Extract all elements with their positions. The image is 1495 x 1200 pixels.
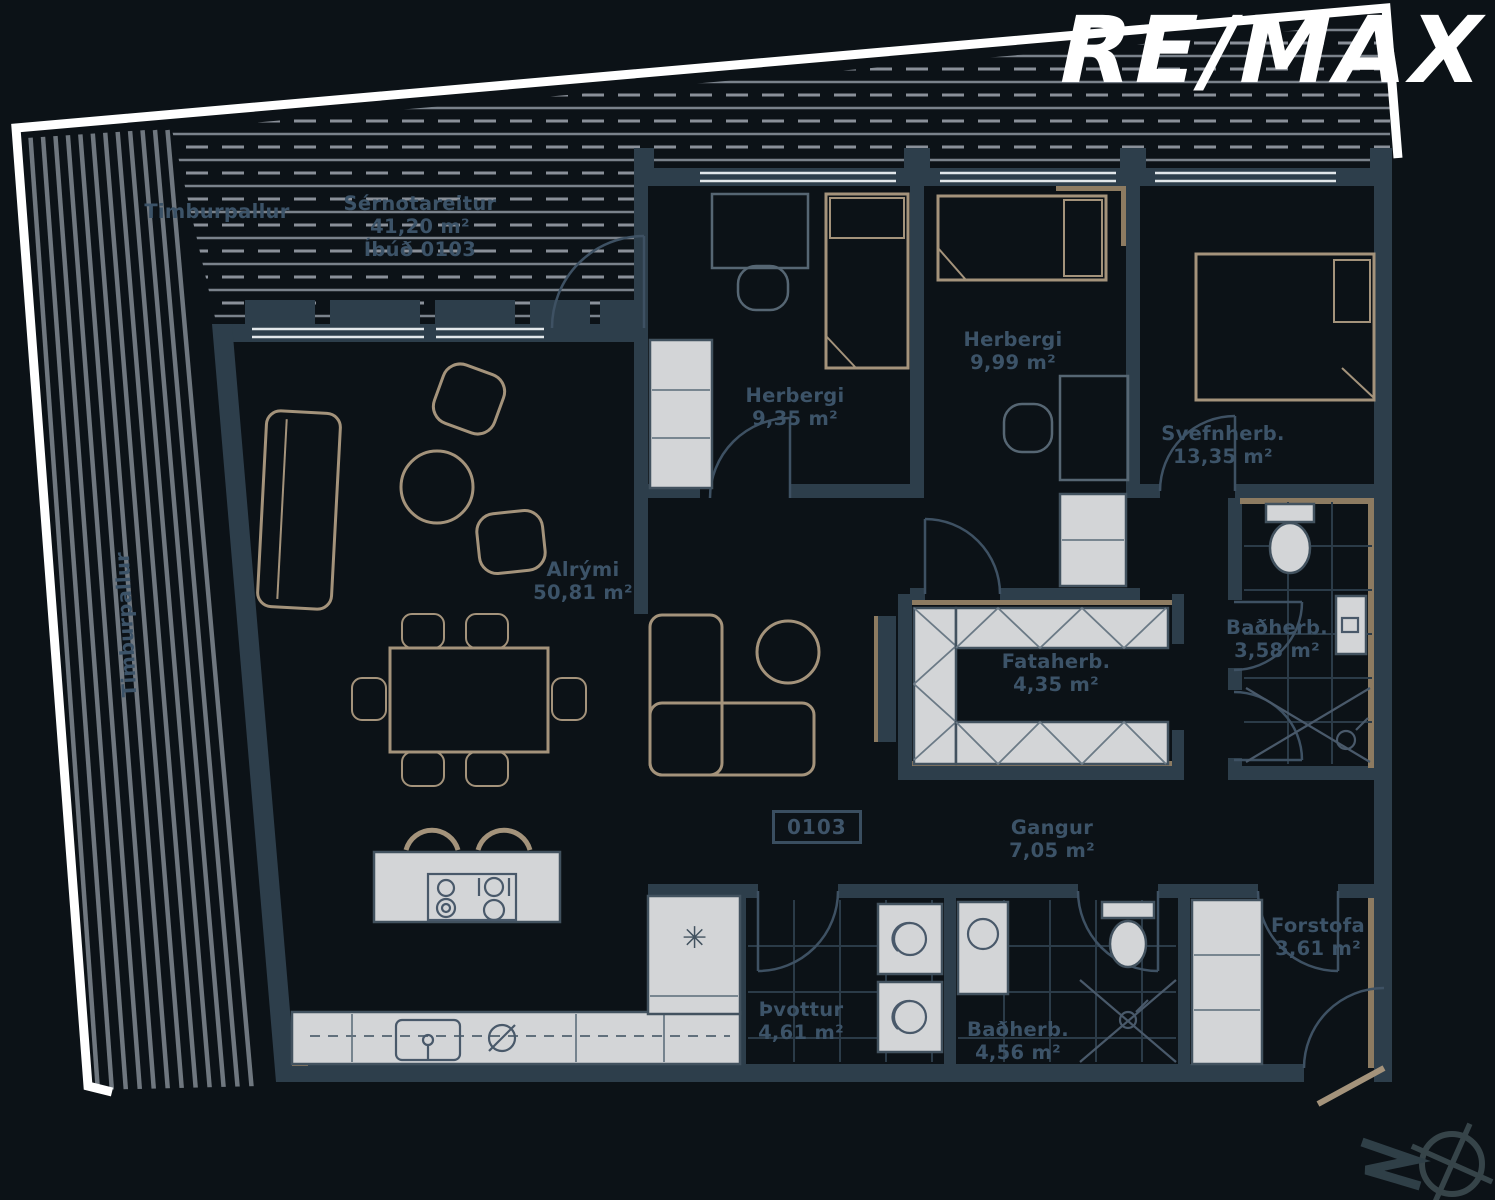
unit-number-badge: 0103 bbox=[772, 810, 862, 844]
label-gangur: Gangur 7,05 m² bbox=[952, 816, 1152, 862]
pillow bbox=[830, 198, 904, 238]
toilet bbox=[1270, 523, 1310, 573]
bed bbox=[938, 196, 1106, 280]
dining-table bbox=[390, 648, 548, 752]
label-forstofa: Forstofa 3,61 m² bbox=[1218, 914, 1418, 960]
shower-head bbox=[1337, 731, 1355, 749]
kitchen: ✳ bbox=[292, 830, 740, 1064]
toilet-cistern bbox=[1102, 902, 1154, 918]
dining-chair bbox=[552, 678, 586, 720]
desk-chair bbox=[1004, 404, 1052, 452]
bedroom2-furniture bbox=[938, 196, 1128, 586]
double-bed bbox=[1196, 254, 1374, 400]
label-sernotareitur: Sérnotareitur 41,20 m² Íbúð 0103 bbox=[320, 192, 520, 261]
pillow bbox=[1064, 200, 1102, 276]
floorplan-canvas: ✳ bbox=[0, 0, 1495, 1200]
dining-chair bbox=[466, 614, 508, 648]
bedroom1-furniture bbox=[650, 194, 908, 488]
dining-chair bbox=[352, 678, 386, 720]
dining-chair bbox=[466, 752, 508, 786]
kitchen-island bbox=[374, 852, 560, 922]
deck-left-planks bbox=[30, 130, 252, 1092]
master-bedroom-furniture bbox=[1196, 254, 1374, 400]
desk bbox=[1060, 376, 1128, 480]
bar-stool bbox=[406, 830, 458, 850]
fridge-symbol: ✳ bbox=[682, 921, 707, 956]
bar-stool bbox=[478, 830, 530, 850]
corner-sofa bbox=[650, 703, 814, 775]
label-svefnherb: Svefnherb. 13,35 m² bbox=[1123, 422, 1323, 468]
washing-machine bbox=[878, 904, 942, 974]
coffee-table bbox=[401, 451, 473, 523]
label-thvottur: Þvottur 4,61 m² bbox=[701, 998, 901, 1044]
label-badherb-1: Baðherb. 3,58 m² bbox=[1177, 616, 1377, 662]
dining-chair bbox=[402, 752, 444, 786]
desk-chair bbox=[738, 266, 788, 310]
side-table bbox=[757, 621, 819, 683]
armchair bbox=[428, 359, 509, 439]
label-herbergi-2: Herbergi 9,99 m² bbox=[913, 328, 1113, 374]
toilet-cistern bbox=[1266, 504, 1314, 522]
label-timburpallur-top: Timburpallur bbox=[117, 200, 317, 223]
remax-logo: RE/MAX bbox=[1049, 0, 1495, 101]
label-fataherb: Fataherb. 4,35 m² bbox=[956, 650, 1156, 696]
label-herbergi-1: Herbergi 9,35 m² bbox=[695, 384, 895, 430]
label-badherb-2: Baðherb. 4,56 m² bbox=[918, 1018, 1118, 1064]
compass-north-icon bbox=[1362, 1106, 1495, 1200]
bed bbox=[826, 194, 908, 368]
chaise-sofa bbox=[650, 615, 722, 775]
toilet bbox=[1110, 921, 1146, 967]
pillow bbox=[1334, 260, 1370, 322]
dining-chair bbox=[402, 614, 444, 648]
desk bbox=[712, 194, 808, 268]
tv-unit bbox=[878, 616, 896, 742]
label-alrymi: Alrými 50,81 m² bbox=[483, 558, 683, 604]
sofa bbox=[257, 410, 341, 610]
